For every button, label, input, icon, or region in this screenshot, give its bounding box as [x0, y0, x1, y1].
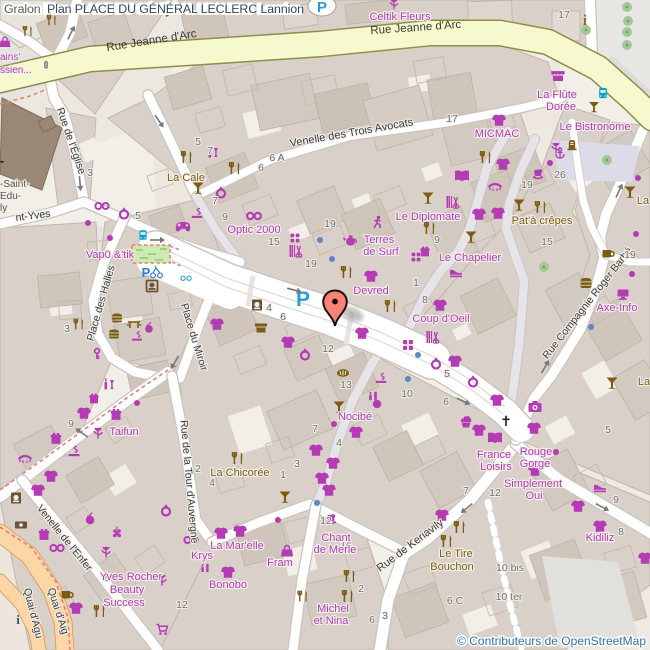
svg-text:-Saint-: -Saint- — [0, 179, 29, 190]
svg-text:La Flûte: La Flûte — [537, 89, 577, 101]
svg-text:ly: ly — [0, 203, 7, 214]
svg-text:Fram: Fram — [267, 557, 293, 569]
svg-text:9: 9 — [613, 494, 619, 506]
svg-text:3: 3 — [382, 610, 388, 622]
svg-text:1: 1 — [413, 277, 419, 289]
svg-text:7: 7 — [312, 423, 318, 435]
svg-text:7: 7 — [207, 145, 213, 157]
svg-text:Gorge: Gorge — [520, 458, 551, 470]
svg-text:ains': ains' — [0, 52, 20, 63]
svg-text:6: 6 — [280, 311, 286, 323]
svg-text:Coup d'Oeil: Coup d'Oeil — [412, 313, 469, 325]
svg-text:P: P — [142, 265, 151, 280]
svg-text:Success: Success — [103, 597, 145, 609]
svg-text:Gralon: Gralon — [4, 2, 41, 16]
svg-text:Michel: Michel — [317, 603, 349, 615]
svg-text:3: 3 — [87, 167, 93, 179]
svg-text:5: 5 — [195, 136, 201, 148]
svg-text:Pat'à crêpes: Pat'à crêpes — [512, 215, 573, 227]
svg-text:Chant: Chant — [321, 532, 350, 544]
svg-text:i: i — [583, 13, 587, 29]
svg-text:15: 15 — [541, 236, 553, 248]
svg-text:6 A: 6 A — [269, 152, 284, 164]
svg-text:Beauty: Beauty — [110, 584, 145, 596]
svg-text:7: 7 — [212, 195, 218, 207]
svg-text:MICMAC: MICMAC — [475, 128, 520, 140]
svg-text:8: 8 — [618, 526, 624, 538]
svg-text:3: 3 — [64, 323, 70, 335]
svg-text:Le Diplomate: Le Diplomate — [396, 211, 461, 223]
svg-text:12: 12 — [320, 515, 332, 527]
svg-text:France: France — [477, 449, 511, 461]
svg-text:Simplement: Simplement — [504, 478, 562, 490]
svg-text:7: 7 — [463, 485, 469, 497]
svg-text:10: 10 — [401, 388, 413, 400]
svg-text:19: 19 — [324, 218, 336, 230]
svg-text:10 ter: 10 ter — [496, 591, 523, 603]
svg-text:et Nina: et Nina — [314, 615, 350, 627]
svg-text:La: La — [637, 195, 650, 207]
svg-text:Edu-: Edu- — [0, 191, 21, 202]
svg-text:La Mar'elle: La Mar'elle — [210, 540, 263, 552]
svg-text:2: 2 — [195, 463, 201, 475]
svg-text:12: 12 — [176, 599, 188, 611]
svg-text:La Cale: La Cale — [167, 172, 205, 184]
svg-text:17: 17 — [446, 113, 458, 125]
svg-text:Bouchon: Bouchon — [430, 561, 473, 573]
svg-text:Kidiliz: Kidiliz — [586, 532, 615, 544]
svg-text:10 bis: 10 bis — [496, 562, 524, 574]
svg-text:Celtik Fleurs: Celtik Fleurs — [369, 11, 431, 23]
svg-text:Oui: Oui — [525, 490, 542, 502]
svg-text:5: 5 — [135, 210, 141, 222]
svg-text:6: 6 — [443, 396, 449, 408]
svg-text:Le Bistronome: Le Bistronome — [560, 121, 631, 133]
svg-text:✝: ✝ — [500, 413, 512, 429]
svg-text:9: 9 — [434, 234, 440, 246]
svg-text:6 C: 6 C — [447, 595, 464, 607]
svg-text:Plan PLACE DU GÉNÉRAL LECLERC: Plan PLACE DU GÉNÉRAL LECLERC Lannion — [47, 1, 304, 16]
svg-text:5: 5 — [444, 368, 450, 380]
svg-text:Taifun: Taifun — [109, 426, 138, 438]
svg-text:15: 15 — [268, 236, 280, 248]
svg-text:ssien...: ssien... — [0, 65, 32, 76]
svg-text:Le Tire: Le Tire — [439, 548, 473, 560]
svg-text:26: 26 — [554, 169, 566, 181]
svg-text:8: 8 — [422, 294, 428, 306]
svg-text:6: 6 — [258, 162, 264, 174]
svg-text:La: La — [638, 376, 650, 388]
svg-text:Rouge: Rouge — [520, 446, 552, 458]
svg-text:17: 17 — [558, 9, 570, 21]
svg-text:12: 12 — [322, 343, 334, 355]
svg-text:19: 19 — [624, 249, 636, 261]
svg-text:-: - — [0, 154, 4, 168]
svg-text:Terres: Terres — [364, 234, 395, 246]
svg-text:2: 2 — [358, 583, 364, 595]
svg-text:6: 6 — [369, 614, 375, 626]
svg-text:i: i — [16, 612, 20, 627]
svg-text:Optic 2000: Optic 2000 — [227, 224, 280, 236]
svg-text:de Merle: de Merle — [314, 544, 357, 556]
svg-text:Yves Rocher: Yves Rocher — [100, 571, 163, 583]
svg-text:4: 4 — [336, 437, 342, 449]
svg-text:de Surf: de Surf — [363, 246, 399, 258]
svg-text:19: 19 — [305, 258, 317, 270]
svg-text:Bonobo: Bonobo — [209, 579, 247, 591]
svg-text:Vap0 &'tik: Vap0 &'tik — [86, 249, 135, 261]
svg-text:3: 3 — [294, 458, 300, 470]
svg-text:Le Chapelier: Le Chapelier — [439, 252, 502, 264]
svg-text:Axe-Info: Axe-Info — [597, 302, 638, 314]
svg-text:1: 1 — [280, 469, 286, 481]
svg-text:Dorée: Dorée — [546, 101, 576, 113]
svg-text:5: 5 — [605, 424, 611, 436]
svg-text:Nocibé: Nocibé — [338, 411, 372, 423]
svg-text:La Chicorée: La Chicorée — [210, 467, 269, 479]
svg-text:Loisirs: Loisirs — [480, 461, 512, 473]
svg-text:9: 9 — [222, 211, 228, 223]
svg-text:4: 4 — [266, 302, 272, 314]
svg-text:P: P — [317, 0, 327, 16]
svg-text:19: 19 — [521, 179, 533, 191]
svg-text:13: 13 — [340, 379, 352, 391]
svg-text:© Contributeurs de OpenStreetM: © Contributeurs de OpenStreetMap — [457, 634, 646, 648]
svg-text:Devred: Devred — [353, 285, 388, 297]
svg-text:9: 9 — [68, 418, 74, 430]
svg-text:12: 12 — [489, 487, 501, 499]
